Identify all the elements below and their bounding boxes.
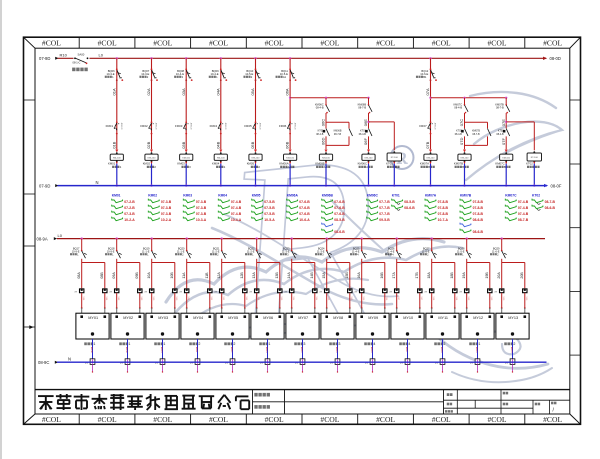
svg-text:14B: 14B: [310, 272, 314, 279]
svg-text:#COL: #COL: [42, 38, 61, 47]
svg-text:07C: 07C: [459, 119, 464, 126]
svg-text:11A: 11A: [182, 272, 186, 279]
svg-text:11-4-E: 11-4-E: [352, 249, 360, 253]
svg-text:KM-100: KM-100: [427, 157, 435, 159]
svg-text:10-6-A: 10-6-A: [299, 218, 310, 222]
svg-text:MV08: MV08: [90, 347, 92, 353]
svg-text:04A: 04A: [215, 88, 220, 95]
svg-text:3: 3: [303, 342, 305, 346]
svg-text:10-7-A: 10-7-A: [438, 218, 449, 222]
svg-text:10-3-A: 10-3-A: [196, 218, 207, 222]
svg-text:KM01: KM01: [112, 193, 121, 197]
svg-text:4: 4: [408, 342, 410, 346]
svg-text:12A: 12A: [217, 272, 221, 279]
svg-text:FR05: FR05: [244, 124, 252, 128]
svg-text:V20: V20: [525, 297, 527, 302]
svg-text:1: 1: [268, 342, 270, 346]
svg-text:07-4-B: 07-4-B: [518, 212, 529, 216]
svg-text:11-5-E: 11-5-E: [457, 249, 465, 253]
svg-text:06B: 06B: [285, 141, 290, 148]
svg-text:XT: XT: [110, 291, 113, 293]
svg-text:JR36-20: JR36-20: [293, 123, 295, 130]
svg-text:V20: V20: [502, 297, 504, 302]
svg-text:08-9C: 08-9C: [38, 360, 49, 365]
svg-text:01A: 01A: [111, 88, 116, 95]
svg-text:MY11: MY11: [438, 316, 448, 320]
svg-text:V18: V18: [455, 297, 457, 302]
svg-text:R10: R10: [60, 53, 68, 58]
svg-text:V19: V19: [490, 297, 492, 302]
svg-text:07-4-B: 07-4-B: [518, 206, 529, 210]
svg-text:07-6-B: 07-6-B: [334, 212, 345, 216]
svg-text:06E: 06E: [363, 119, 368, 126]
svg-text:07-8-B: 07-8-B: [473, 206, 484, 210]
svg-text:#COL: #COL: [543, 415, 562, 424]
svg-text:MY08: MY08: [333, 316, 343, 320]
svg-text:07-3-B: 07-3-B: [161, 200, 172, 204]
svg-text:JR36-20: JR36-20: [155, 123, 157, 130]
svg-text:11-1-E: 11-1-E: [142, 249, 150, 253]
svg-text:07A: 07A: [425, 88, 430, 95]
svg-text:08-4-B: 08-4-B: [359, 133, 367, 136]
svg-text:#COL: #COL: [376, 38, 395, 47]
svg-text:10-9-E: 10-9-E: [72, 249, 80, 253]
svg-text:14A: 14A: [287, 272, 291, 279]
svg-text:KM05: KM05: [252, 193, 261, 197]
svg-text:07-6-B: 07-6-B: [299, 212, 310, 216]
svg-text:FR06: FR06: [279, 124, 287, 128]
svg-text:JR36-20: JR36-20: [189, 123, 191, 130]
svg-text:1: 1: [93, 342, 95, 346]
svg-text:XT: XT: [505, 363, 508, 365]
svg-text:#COL: #COL: [432, 38, 451, 47]
svg-text:#COL: #COL: [488, 415, 507, 424]
svg-text:08-6-B: 08-6-B: [473, 230, 484, 234]
svg-text:12B: 12B: [240, 272, 244, 279]
svg-text:11-2-E: 11-2-E: [247, 249, 255, 253]
svg-text:09B: 09B: [135, 272, 139, 279]
svg-text:11-5-E: 11-5-E: [422, 249, 430, 253]
svg-text:11-3-E: 11-3-E: [317, 249, 325, 253]
svg-text:08-6-B: 08-6-B: [545, 206, 556, 210]
svg-text:#COL: #COL: [153, 415, 172, 424]
svg-text:MY07: MY07: [298, 316, 308, 320]
svg-text:10-4-A: 10-4-A: [231, 218, 242, 222]
svg-text:KT02: KT02: [532, 193, 540, 197]
svg-text:KM06A: KM06A: [287, 193, 299, 197]
svg-text:V12: V12: [222, 297, 224, 302]
svg-text:07-7-B: 07-7-B: [379, 212, 390, 216]
svg-text:V18: V18: [432, 297, 434, 302]
svg-text:/: /: [553, 408, 555, 414]
svg-text:V19: V19: [467, 297, 469, 302]
svg-text:08-7-B: 08-7-B: [545, 200, 556, 204]
svg-text:2: 2: [154, 165, 156, 169]
svg-text:07-9D: 07-9D: [39, 184, 50, 189]
svg-text:2: 2: [513, 342, 515, 346]
svg-text:18B: 18B: [450, 272, 454, 279]
svg-text:XT: XT: [390, 291, 393, 293]
svg-text:MY13: MY13: [508, 316, 518, 320]
svg-text:11-6-E: 11-6-E: [492, 249, 500, 253]
svg-text:MY09: MY09: [368, 316, 378, 320]
svg-text:16B: 16B: [380, 272, 384, 279]
svg-text:08-4-B: 08-4-B: [496, 133, 504, 136]
svg-text:A: A: [366, 165, 368, 169]
svg-text:MV15: MV15: [335, 347, 337, 353]
svg-text:XT: XT: [460, 291, 463, 293]
svg-text:V09: V09: [117, 297, 119, 302]
svg-text:XT: XT: [400, 363, 403, 365]
svg-text:08-9A: 08-9A: [37, 236, 48, 241]
svg-text:#COL: #COL: [153, 38, 172, 47]
svg-text:KT-100: KT-100: [391, 157, 399, 159]
svg-text:XT: XT: [145, 291, 148, 293]
svg-text:V10: V10: [152, 297, 154, 302]
svg-text:15A: 15A: [322, 272, 326, 279]
svg-text:10-9-E: 10-9-E: [107, 249, 115, 253]
svg-text:KM-100: KM-100: [365, 157, 373, 159]
svg-text:3: 3: [338, 342, 340, 346]
svg-text:07-8-B: 07-8-B: [438, 212, 449, 216]
svg-text:KM02: KM02: [148, 193, 157, 197]
svg-text:MV19: MV19: [475, 347, 477, 353]
svg-text:KT01: KT01: [386, 162, 393, 166]
svg-text:MV10: MV10: [160, 347, 162, 353]
svg-text:07-9D: 07-9D: [39, 56, 50, 61]
svg-text:V09: V09: [140, 297, 142, 302]
svg-text:07B: 07B: [425, 141, 430, 148]
svg-text:KM-100: KM-100: [148, 157, 156, 159]
svg-text:04B: 04B: [215, 141, 220, 148]
svg-text:07-2-B: 07-2-B: [124, 206, 135, 210]
svg-text:MY01: MY01: [88, 316, 98, 320]
svg-text:MV09: MV09: [125, 347, 127, 353]
svg-text:11-2-E: 11-2-E: [212, 249, 220, 253]
svg-text:10B: 10B: [170, 272, 174, 279]
svg-text:MV18: MV18: [440, 347, 442, 353]
svg-text:07-8-B: 07-8-B: [473, 200, 484, 204]
svg-text:07-8-B: 07-8-B: [473, 212, 484, 216]
svg-text:06F: 06F: [363, 138, 368, 145]
svg-text:08-6-B: 08-6-B: [473, 218, 484, 222]
svg-text:07F: 07F: [501, 138, 506, 145]
svg-text:KM07A: KM07A: [425, 193, 437, 197]
svg-text:07-6-B: 07-6-B: [299, 206, 310, 210]
svg-text:08-7-B: 08-7-B: [334, 133, 342, 136]
svg-text:08-5-B: 08-5-B: [334, 218, 345, 222]
svg-text:MV11: MV11: [195, 347, 197, 353]
svg-text:1: 1: [163, 342, 165, 346]
svg-text:V08: V08: [105, 297, 107, 302]
svg-text:08-4-B: 08-4-B: [316, 105, 324, 109]
svg-text:07-6-B: 07-6-B: [334, 206, 345, 210]
svg-text:XT: XT: [190, 363, 193, 365]
svg-text:07-3-B: 07-3-B: [161, 212, 172, 216]
svg-text:KM07B: KM07B: [460, 193, 472, 197]
svg-text:KM-100: KM-100: [113, 157, 121, 159]
svg-text:XT: XT: [495, 291, 498, 293]
svg-text:08-7-B: 08-7-B: [496, 105, 504, 109]
svg-text:07-4-B: 07-4-B: [231, 212, 242, 216]
svg-text:08-7-B: 08-7-B: [472, 133, 480, 136]
svg-text:XT: XT: [225, 363, 228, 365]
svg-text:KM02: KM02: [143, 162, 151, 166]
svg-text:07-6-B: 07-6-B: [299, 200, 310, 204]
svg-text:05B: 05B: [250, 141, 255, 148]
svg-text:SA00: SA00: [78, 53, 85, 57]
svg-text:20B: 20B: [520, 272, 524, 279]
svg-text:XT: XT: [155, 363, 158, 365]
svg-text:07-5-B: 07-5-B: [264, 206, 275, 210]
svg-text:16A: 16A: [357, 272, 361, 279]
svg-text:XT: XT: [435, 363, 438, 365]
svg-text:17B: 17B: [415, 272, 419, 279]
svg-text:MV17: MV17: [405, 347, 407, 353]
svg-text:MY06: MY06: [263, 316, 273, 320]
svg-text:1: 1: [478, 342, 480, 346]
svg-text:MV16: MV16: [370, 347, 372, 353]
svg-text:MV20: MV20: [510, 347, 512, 353]
svg-text:05A: 05A: [250, 88, 255, 95]
svg-text:03A: 03A: [181, 88, 186, 95]
svg-text:MY02: MY02: [123, 316, 133, 320]
svg-text:03B: 03B: [181, 141, 186, 148]
svg-text:06D: 06D: [321, 138, 326, 145]
svg-text:XT: XT: [85, 363, 88, 365]
svg-text:MY03: MY03: [158, 316, 168, 320]
svg-text:07-4-B: 07-4-B: [231, 200, 242, 204]
svg-text:08-6-B: 08-6-B: [404, 206, 415, 210]
svg-text:B: B: [504, 165, 506, 169]
svg-text:FR07: FR07: [419, 124, 427, 128]
svg-text:MV14: MV14: [300, 347, 302, 353]
svg-text:2: 2: [198, 342, 200, 346]
svg-text:#COL: #COL: [432, 415, 451, 424]
svg-text:07-4-B: 07-4-B: [518, 200, 529, 204]
svg-text:A: A: [324, 165, 326, 169]
svg-text:08-4-B: 08-4-B: [455, 133, 463, 136]
svg-text:09A: 09A: [112, 272, 116, 279]
svg-text:08-7-B: 08-7-B: [358, 105, 366, 109]
svg-text:13B: 13B: [275, 272, 279, 279]
svg-text:07-3-B: 07-3-B: [161, 206, 172, 210]
svg-text:15B: 15B: [345, 272, 349, 279]
svg-text:01B: 01B: [111, 141, 116, 148]
svg-text:KM-100: KM-100: [182, 157, 190, 159]
svg-text:07D: 07D: [459, 138, 464, 145]
svg-text:06A: 06A: [285, 88, 290, 95]
svg-text:07-7-B: 07-7-B: [379, 200, 390, 204]
svg-text:B: B: [428, 165, 430, 169]
svg-text:JR36-20: JR36-20: [224, 123, 226, 130]
svg-text:09-5-B: 09-5-B: [379, 218, 390, 222]
svg-text:KM06C: KM06C: [367, 193, 379, 197]
svg-text:V08: V08: [82, 297, 84, 302]
svg-text:10-5-A: 10-5-A: [264, 218, 275, 222]
svg-text:XT: XT: [120, 363, 123, 365]
svg-text:L0: L0: [99, 53, 104, 58]
svg-text:V17: V17: [420, 297, 422, 302]
svg-text:MY12: MY12: [473, 316, 483, 320]
svg-text:11-1-E: 11-1-E: [177, 249, 185, 253]
svg-text:#COL: #COL: [98, 38, 117, 47]
svg-text:KT01: KT01: [392, 193, 400, 197]
svg-text:KM-100: KM-100: [502, 157, 510, 159]
svg-text:MV13: MV13: [265, 347, 267, 353]
svg-text:07-7-B: 07-7-B: [379, 206, 390, 210]
svg-text:KM07C: KM07C: [505, 193, 517, 197]
svg-text:KM-100: KM-100: [286, 157, 294, 159]
svg-text:#COL: #COL: [320, 415, 339, 424]
svg-text:08-4-B: 08-4-B: [454, 105, 462, 109]
svg-text:07-3-B: 07-3-B: [196, 212, 207, 216]
svg-text:10-2-A: 10-2-A: [161, 218, 172, 222]
svg-text:KM05: KM05: [247, 162, 255, 166]
svg-text:2: 2: [233, 342, 235, 346]
svg-text:JR36-20: JR36-20: [259, 123, 261, 130]
svg-text:06C: 06C: [321, 119, 326, 126]
svg-text:FR04: FR04: [210, 124, 218, 128]
svg-text:XT: XT: [470, 363, 473, 365]
svg-text:MY05: MY05: [228, 316, 238, 320]
svg-text:11-4-E: 11-4-E: [387, 249, 395, 253]
svg-text:10-2-A: 10-2-A: [124, 218, 135, 222]
svg-text:MY04: MY04: [193, 316, 203, 320]
svg-text:10A: 10A: [147, 272, 151, 279]
svg-text:FR02: FR02: [140, 124, 148, 128]
svg-text:07-5-B: 07-5-B: [264, 212, 275, 216]
svg-text:XT: XT: [75, 291, 78, 293]
svg-text:MY10: MY10: [403, 316, 413, 320]
svg-text:#COL: #COL: [488, 38, 507, 47]
svg-text:FR03: FR03: [175, 124, 183, 128]
svg-text:4: 4: [373, 342, 375, 346]
svg-text:KM-100: KM-100: [217, 157, 225, 159]
svg-text:08A: 08A: [77, 272, 81, 279]
svg-text:KM-100: KM-100: [461, 157, 469, 159]
svg-text:17A: 17A: [392, 272, 396, 279]
svg-text:13A: 13A: [252, 272, 256, 279]
svg-text:08-1-C: 08-1-C: [73, 61, 81, 65]
svg-text:08-5-B: 08-5-B: [404, 200, 415, 204]
svg-text:A: A: [288, 165, 290, 169]
svg-text:19A: 19A: [462, 272, 466, 279]
svg-text:#COL: #COL: [42, 415, 61, 424]
svg-text:KM01: KM01: [108, 162, 116, 166]
svg-text:V17: V17: [397, 297, 399, 302]
svg-text:02B: 02B: [146, 141, 151, 148]
svg-text:KM06B: KM06B: [322, 193, 334, 197]
svg-text:#COL: #COL: [98, 415, 117, 424]
svg-text:07-5-B: 07-5-B: [264, 200, 275, 204]
svg-text:11B: 11B: [205, 272, 209, 279]
svg-text:#COL: #COL: [265, 38, 284, 47]
svg-text:KM03: KM03: [183, 193, 192, 197]
svg-text:07-3-B: 07-3-B: [196, 200, 207, 204]
svg-text:KT-100: KT-100: [531, 157, 539, 159]
svg-text:FR01: FR01: [106, 124, 114, 128]
svg-text:02A: 02A: [146, 88, 151, 95]
svg-text:07-8-B: 07-8-B: [438, 206, 449, 210]
svg-text:20A: 20A: [497, 272, 501, 279]
svg-text:JR36-20: JR36-20: [120, 123, 122, 130]
svg-text:07-6-B: 07-6-B: [334, 200, 345, 204]
svg-text:08-4-B: 08-4-B: [316, 133, 324, 136]
svg-text:08-7-B: 08-7-B: [518, 218, 529, 222]
svg-text:3: 3: [189, 165, 191, 169]
svg-text:KT02: KT02: [526, 162, 533, 166]
svg-text:07-3-B: 07-3-B: [196, 206, 207, 210]
svg-text:08-0D: 08-0D: [550, 56, 561, 61]
svg-text:07-2-B: 07-2-B: [124, 200, 135, 204]
svg-text:07E: 07E: [501, 119, 506, 126]
svg-text:#COL: #COL: [376, 415, 395, 424]
svg-text:07-3-B: 07-3-B: [124, 212, 135, 216]
svg-text:08-0F: 08-0F: [551, 184, 562, 189]
svg-text:08-6-B: 08-6-B: [334, 230, 345, 234]
svg-text:L0: L0: [58, 233, 63, 238]
svg-text:#COL: #COL: [320, 38, 339, 47]
svg-text:07-4-B: 07-4-B: [231, 206, 242, 210]
svg-text:V10: V10: [175, 297, 177, 302]
svg-text:N: N: [96, 180, 99, 185]
svg-text:1: 1: [120, 165, 122, 169]
svg-text:1: 1: [128, 342, 130, 346]
svg-text:N: N: [68, 356, 71, 361]
svg-text:#COL: #COL: [265, 415, 284, 424]
svg-text:B: B: [462, 165, 464, 169]
svg-text:#COL: #COL: [209, 38, 228, 47]
svg-text:JR36-20: JR36-20: [434, 123, 436, 130]
svg-text:19B: 19B: [485, 272, 489, 279]
svg-text:07-8-B: 07-8-B: [438, 200, 449, 204]
svg-text:18A: 18A: [427, 272, 431, 279]
svg-text:KM04: KM04: [218, 193, 227, 197]
svg-text:KM-100: KM-100: [322, 157, 330, 159]
svg-text:KM03: KM03: [177, 162, 185, 166]
svg-text:XT: XT: [425, 291, 428, 293]
svg-text:#COL: #COL: [543, 38, 562, 47]
svg-text:2: 2: [443, 342, 445, 346]
svg-text:XT: XT: [180, 291, 183, 293]
svg-text:08B: 08B: [100, 272, 104, 279]
svg-text:#COL: #COL: [209, 415, 228, 424]
svg-text:KM-100: KM-100: [252, 157, 260, 159]
svg-text:11-3-E: 11-3-E: [282, 249, 290, 253]
svg-text:V11: V11: [210, 297, 212, 301]
svg-text:KM04: KM04: [212, 162, 220, 166]
svg-text:MV12: MV12: [230, 347, 232, 353]
